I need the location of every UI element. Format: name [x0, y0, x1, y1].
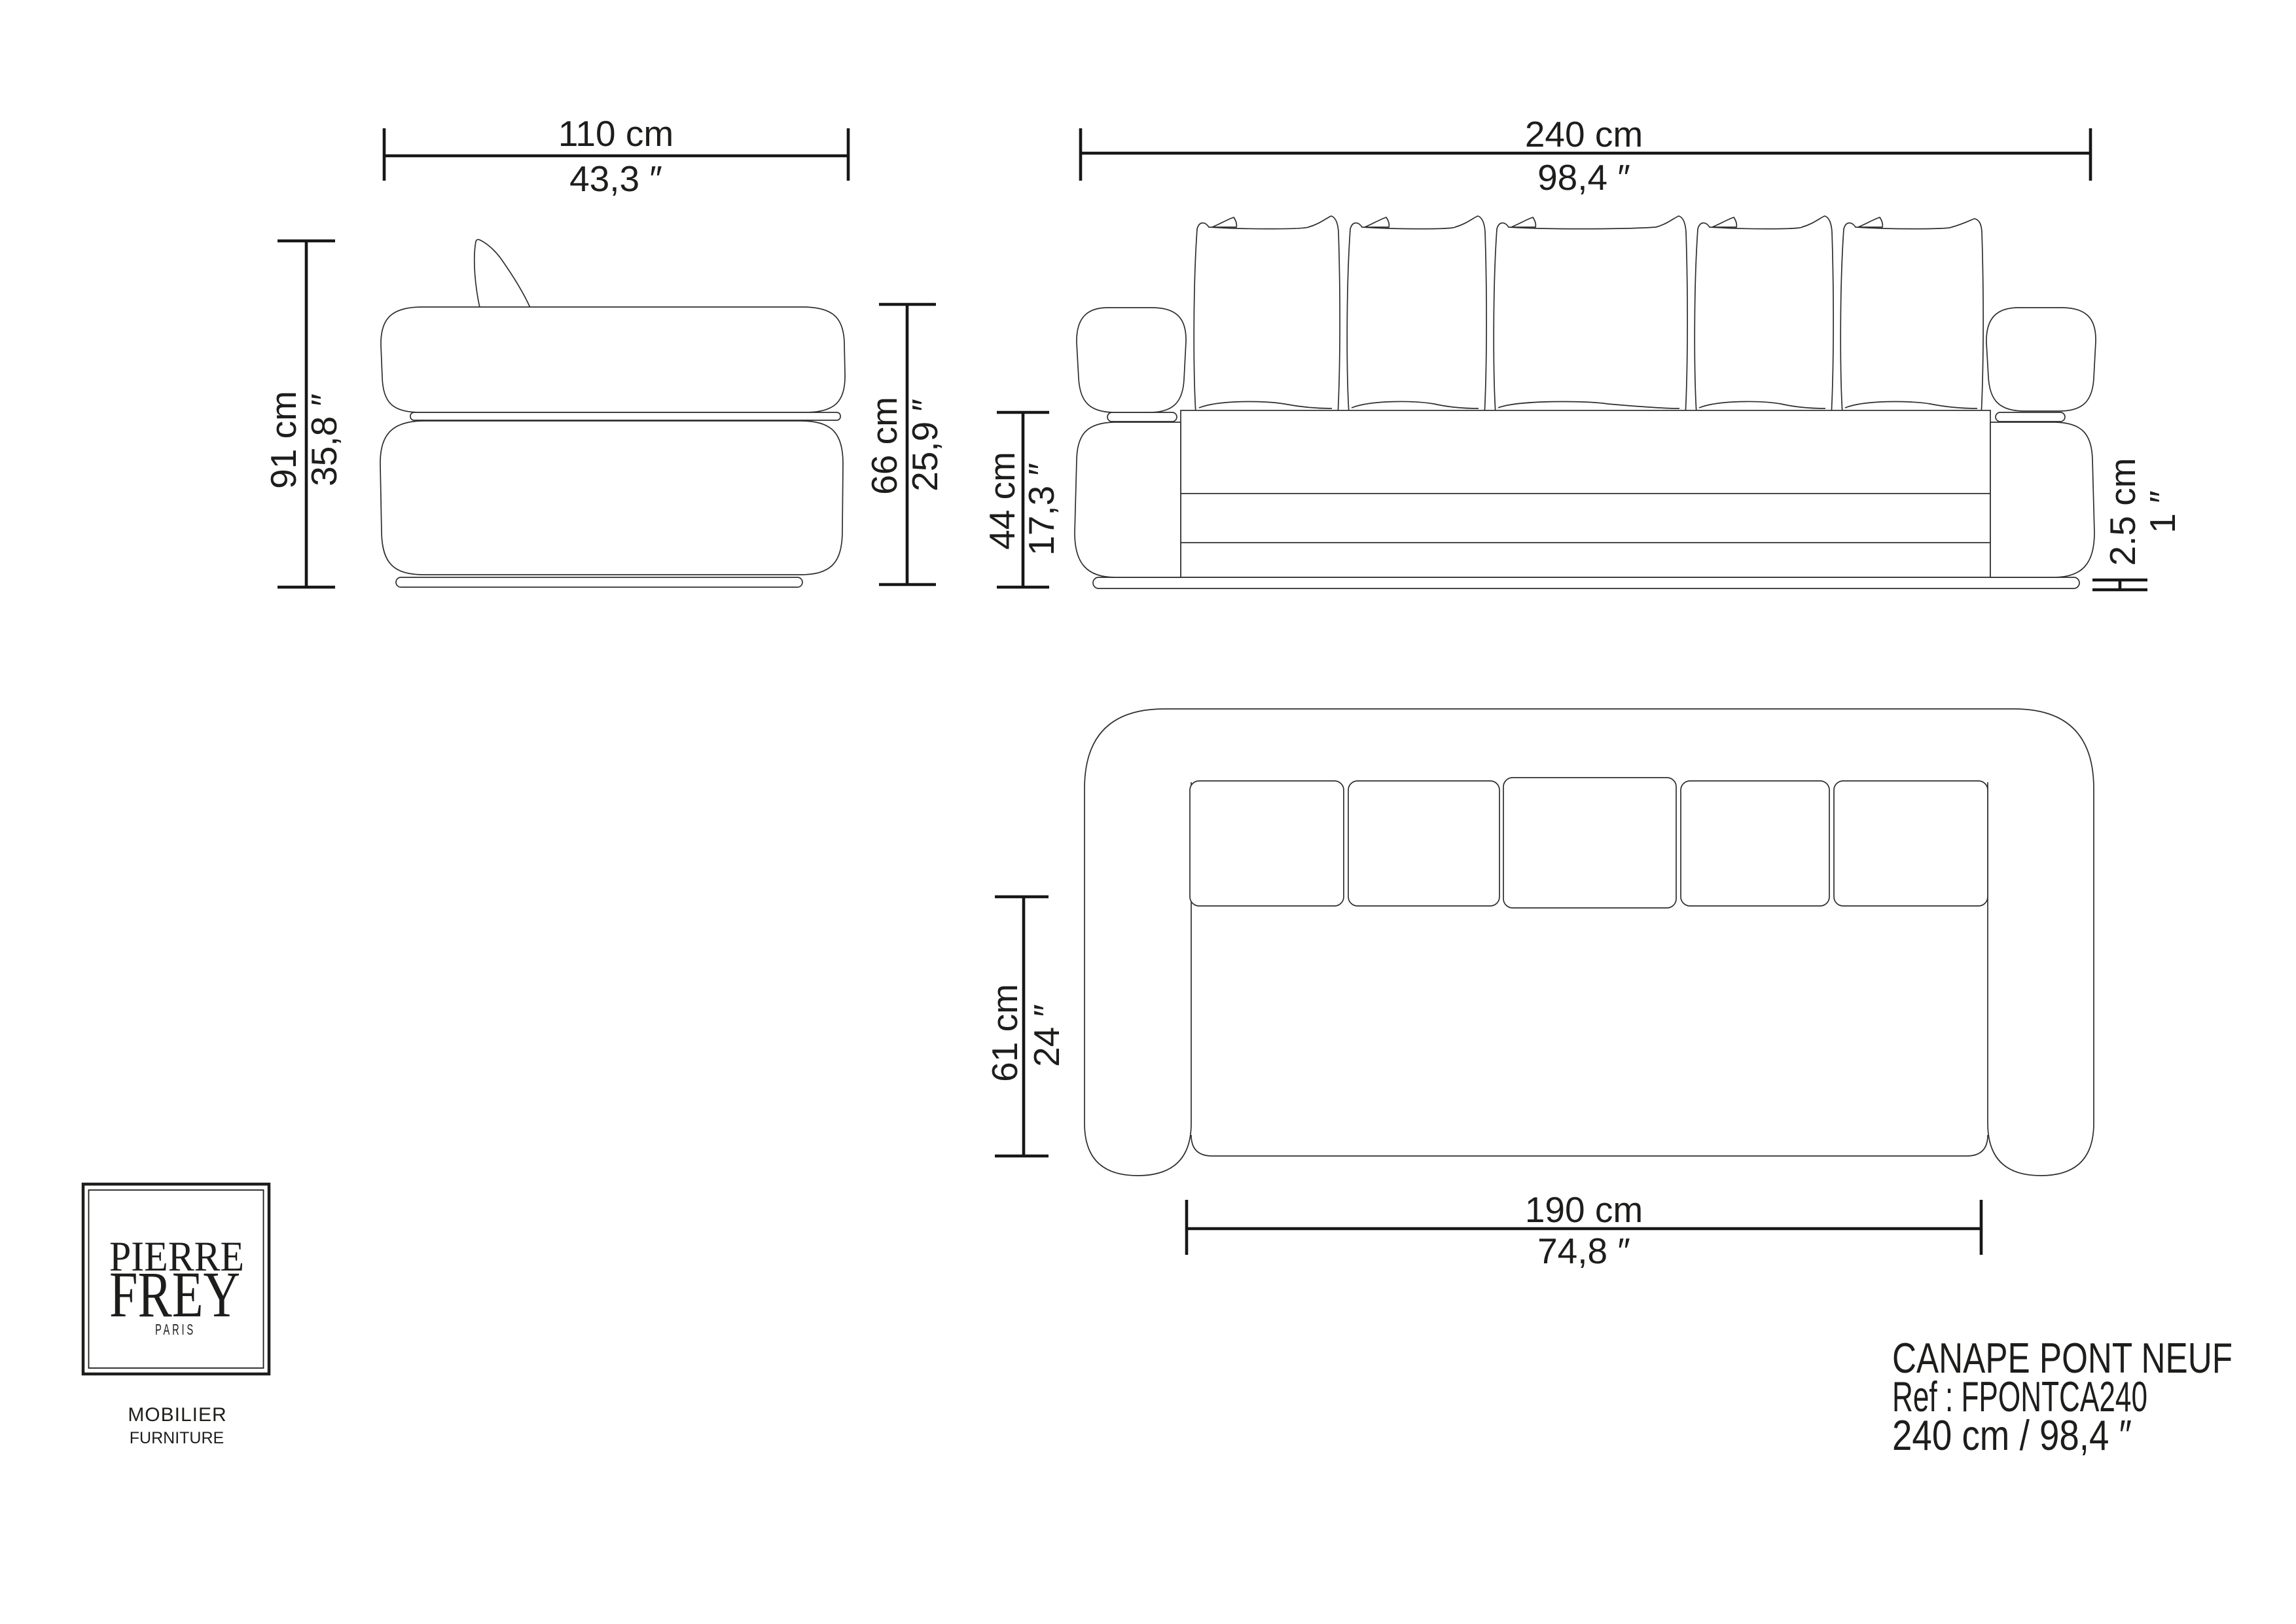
svg-text:FREY: FREY [109, 1258, 240, 1331]
svg-text:110 cm: 110 cm [558, 113, 673, 154]
svg-text:MOBILIER: MOBILIER [128, 1404, 226, 1426]
svg-text:74,8 ″: 74,8 ″ [1537, 1231, 1630, 1271]
svg-text:66 cm: 66 cm [864, 397, 905, 495]
svg-text:44 cm: 44 cm [982, 452, 1022, 550]
svg-text:240 cm / 98,4 ″: 240 cm / 98,4 ″ [1892, 1411, 2132, 1459]
svg-text:43,3 ″: 43,3 ″ [569, 158, 662, 199]
svg-text:91 cm: 91 cm [263, 391, 304, 489]
svg-text:240 cm: 240 cm [1525, 114, 1643, 154]
svg-text:190 cm: 190 cm [1525, 1189, 1643, 1230]
svg-text:98,4 ″: 98,4 ″ [1537, 157, 1630, 198]
svg-text:35,8 ″: 35,8 ″ [304, 393, 344, 486]
svg-text:17,3 ″: 17,3 ″ [1021, 463, 1062, 556]
svg-text:25,9 ″: 25,9 ″ [905, 399, 945, 492]
svg-text:PARIS: PARIS [155, 1321, 196, 1338]
svg-text:24 ″: 24 ″ [1026, 1004, 1067, 1067]
svg-text:2.5 cm: 2.5 cm [2102, 458, 2143, 566]
svg-text:61 cm: 61 cm [984, 984, 1025, 1082]
svg-text:1 ″: 1 ″ [2142, 490, 2183, 533]
svg-text:FURNITURE: FURNITURE [130, 1429, 224, 1447]
